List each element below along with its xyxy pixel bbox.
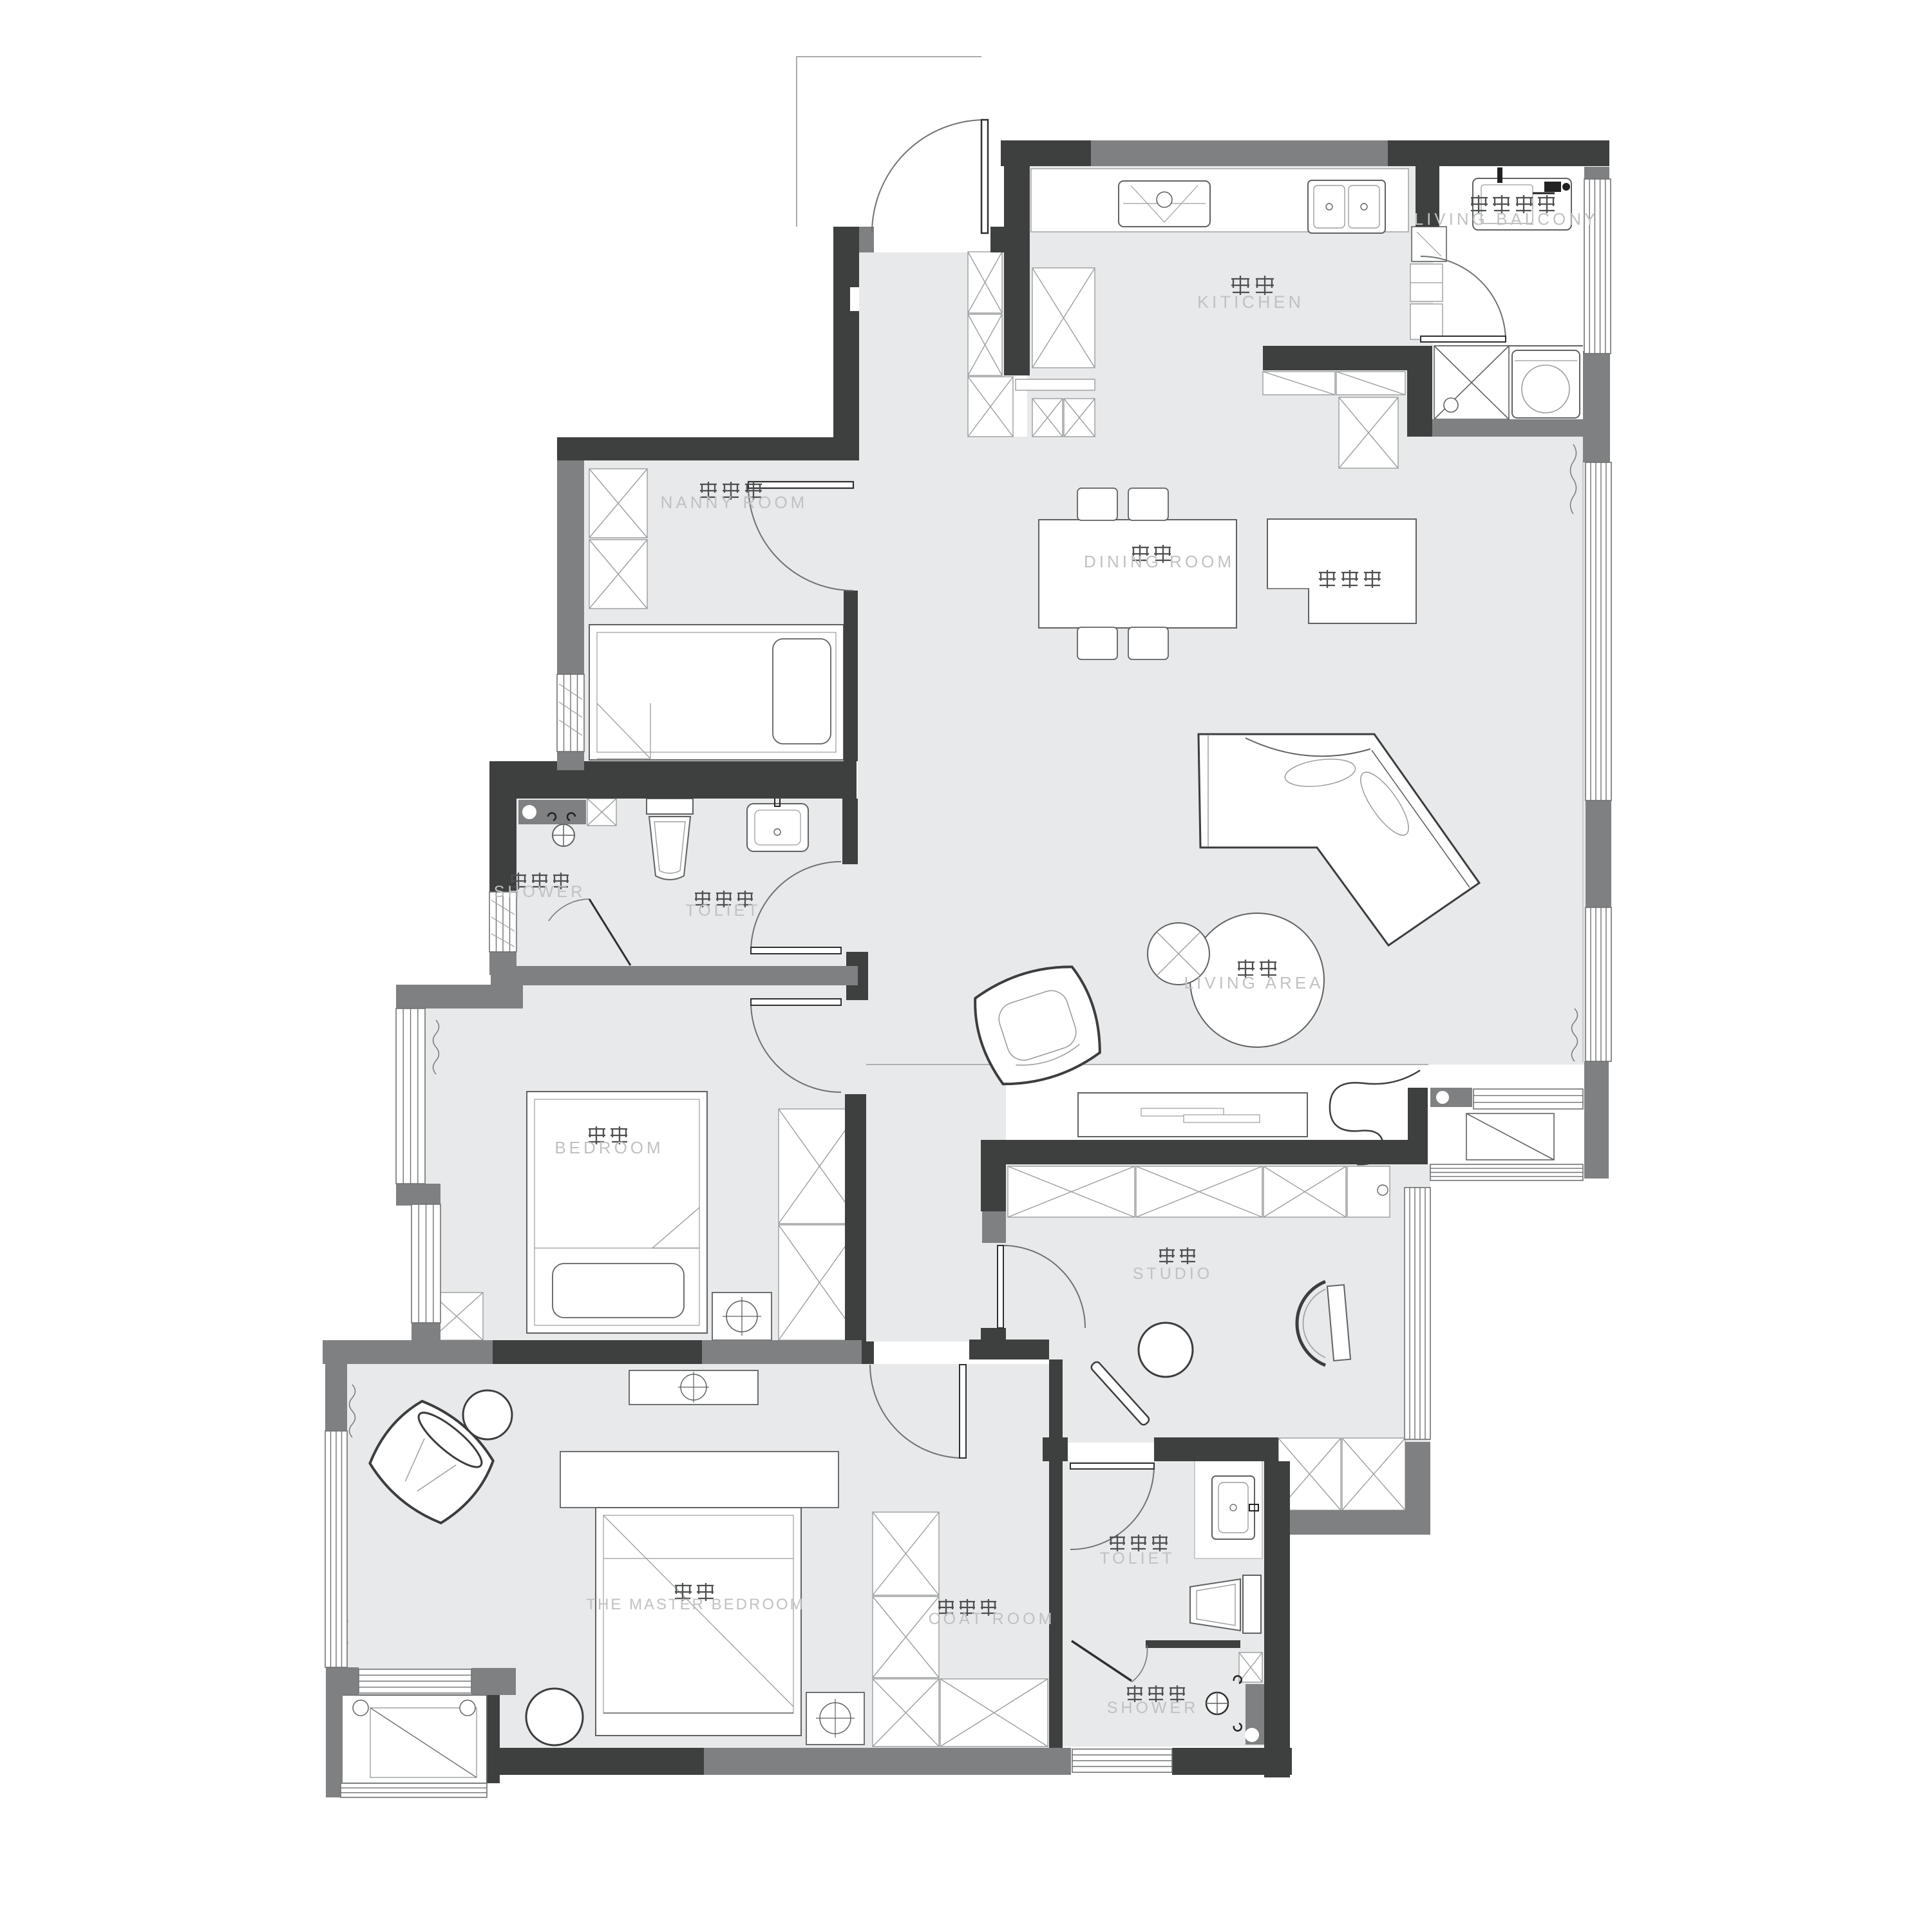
svg-text:COAT ROOM: COAT ROOM	[929, 1610, 1056, 1628]
svg-text:LIVING AREA: LIVING AREA	[1184, 973, 1324, 992]
svg-text:SHOWER: SHOWER	[1107, 1699, 1199, 1717]
svg-text:THE MASTER BEDROOM: THE MASTER BEDROOM	[586, 1596, 804, 1613]
svg-text:TOLIET: TOLIET	[1099, 1549, 1175, 1567]
svg-text:DINING ROOM: DINING ROOM	[1084, 552, 1235, 571]
svg-text:SHOWER: SHOWER	[494, 883, 586, 901]
svg-text:NANNY ROOM: NANNY ROOM	[661, 493, 808, 512]
svg-text:STUDIO: STUDIO	[1133, 1265, 1213, 1283]
svg-text:TOLIET: TOLIET	[685, 902, 761, 920]
svg-text:KITICHEN: KITICHEN	[1197, 292, 1304, 312]
svg-text:LIVING BALCONY: LIVING BALCONY	[1414, 209, 1599, 229]
svg-text:BEDROOM: BEDROOM	[554, 1138, 663, 1157]
